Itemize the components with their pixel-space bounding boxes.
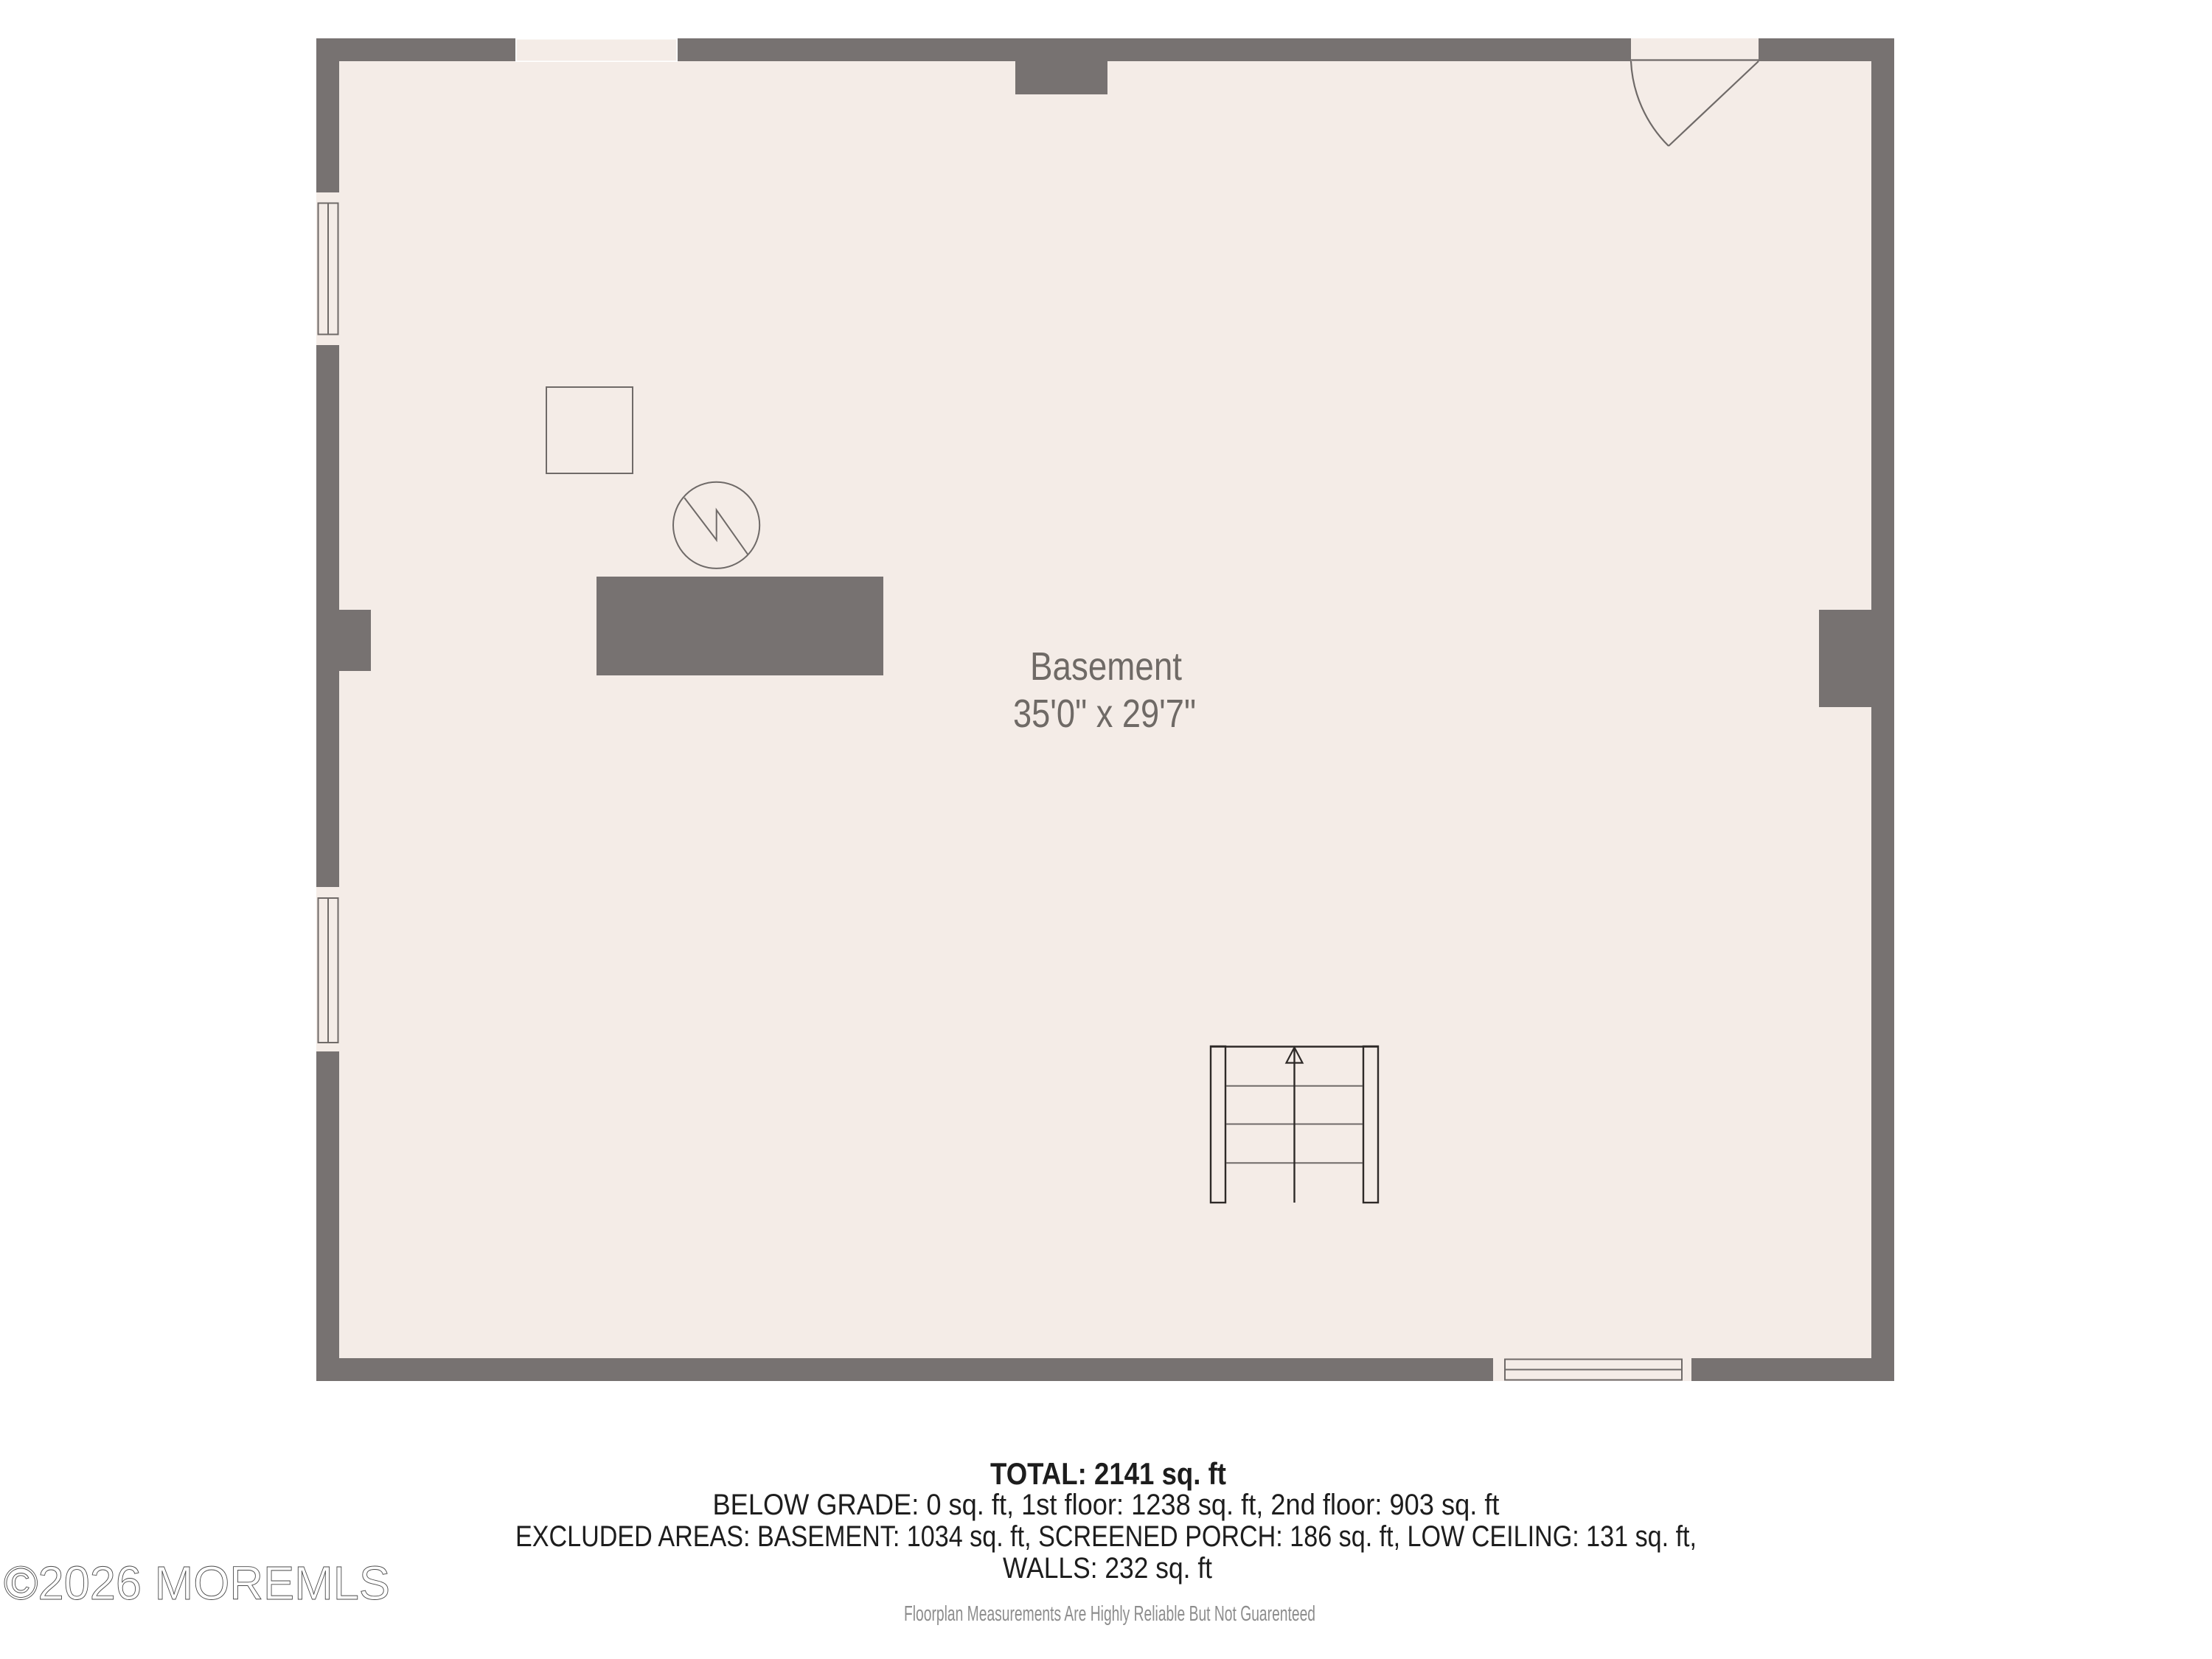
svg-text:©2026 MOREMLS: ©2026 MOREMLS	[4, 1557, 390, 1610]
svg-text:35'0" x 29'7": 35'0" x 29'7"	[1013, 692, 1196, 736]
svg-text:BELOW GRADE: 0 sq. ft, 1st flo: BELOW GRADE: 0 sq. ft, 1st floor: 1238 s…	[713, 1489, 1500, 1521]
svg-text:EXCLUDED AREAS: BASEMENT: 1034: EXCLUDED AREAS: BASEMENT: 1034 sq. ft, S…	[515, 1520, 1697, 1553]
svg-text:Floorplan Measurements Are Hig: Floorplan Measurements Are Highly Reliab…	[904, 1602, 1315, 1626]
svg-text:Basement: Basement	[1030, 644, 1182, 689]
svg-text:WALLS: 232 sq. ft: WALLS: 232 sq. ft	[1003, 1552, 1212, 1585]
svg-text:TOTAL: 2141 sq. ft: TOTAL: 2141 sq. ft	[990, 1456, 1226, 1491]
